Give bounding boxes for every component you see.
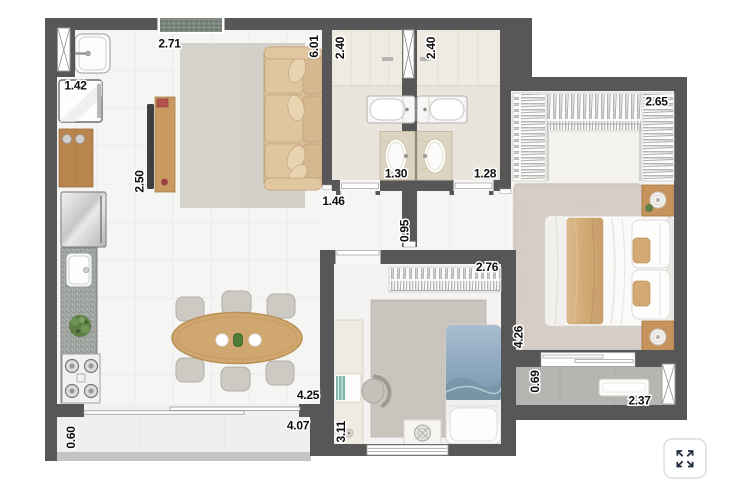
svg-text:0.95: 0.95 (397, 219, 411, 242)
svg-text:6.01: 6.01 (307, 35, 321, 58)
svg-text:1.30: 1.30 (385, 167, 408, 181)
svg-text:2.40: 2.40 (424, 36, 438, 59)
svg-text:2.40: 2.40 (333, 36, 347, 59)
svg-text:1.42: 1.42 (64, 79, 87, 93)
svg-text:3.11: 3.11 (334, 420, 348, 442)
svg-text:1.28: 1.28 (474, 167, 497, 181)
svg-text:4.07: 4.07 (287, 419, 310, 433)
svg-text:2.37: 2.37 (628, 394, 651, 408)
svg-text:1.46: 1.46 (322, 194, 345, 208)
svg-text:4.26: 4.26 (512, 325, 526, 348)
svg-text:0.69: 0.69 (528, 370, 542, 393)
svg-text:0.60: 0.60 (64, 426, 78, 449)
svg-text:4.25: 4.25 (297, 388, 320, 402)
svg-text:2.71: 2.71 (158, 37, 181, 51)
svg-text:2.50: 2.50 (133, 170, 147, 193)
svg-text:2.65: 2.65 (645, 95, 668, 109)
svg-text:2.76: 2.76 (476, 260, 499, 274)
